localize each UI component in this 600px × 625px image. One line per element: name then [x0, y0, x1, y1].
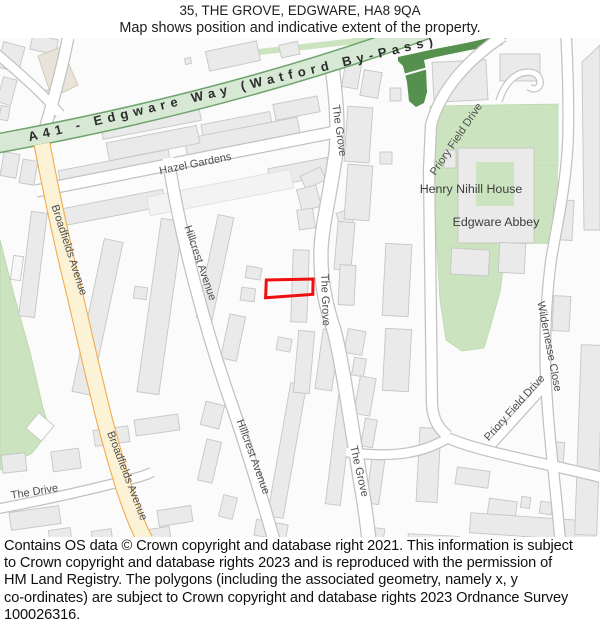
svg-text:Edgware Abbey: Edgware Abbey [453, 215, 541, 229]
svg-text:The Grove: The Grove [318, 274, 332, 326]
svg-text:Henry Nihill House: Henry Nihill House [420, 182, 523, 196]
